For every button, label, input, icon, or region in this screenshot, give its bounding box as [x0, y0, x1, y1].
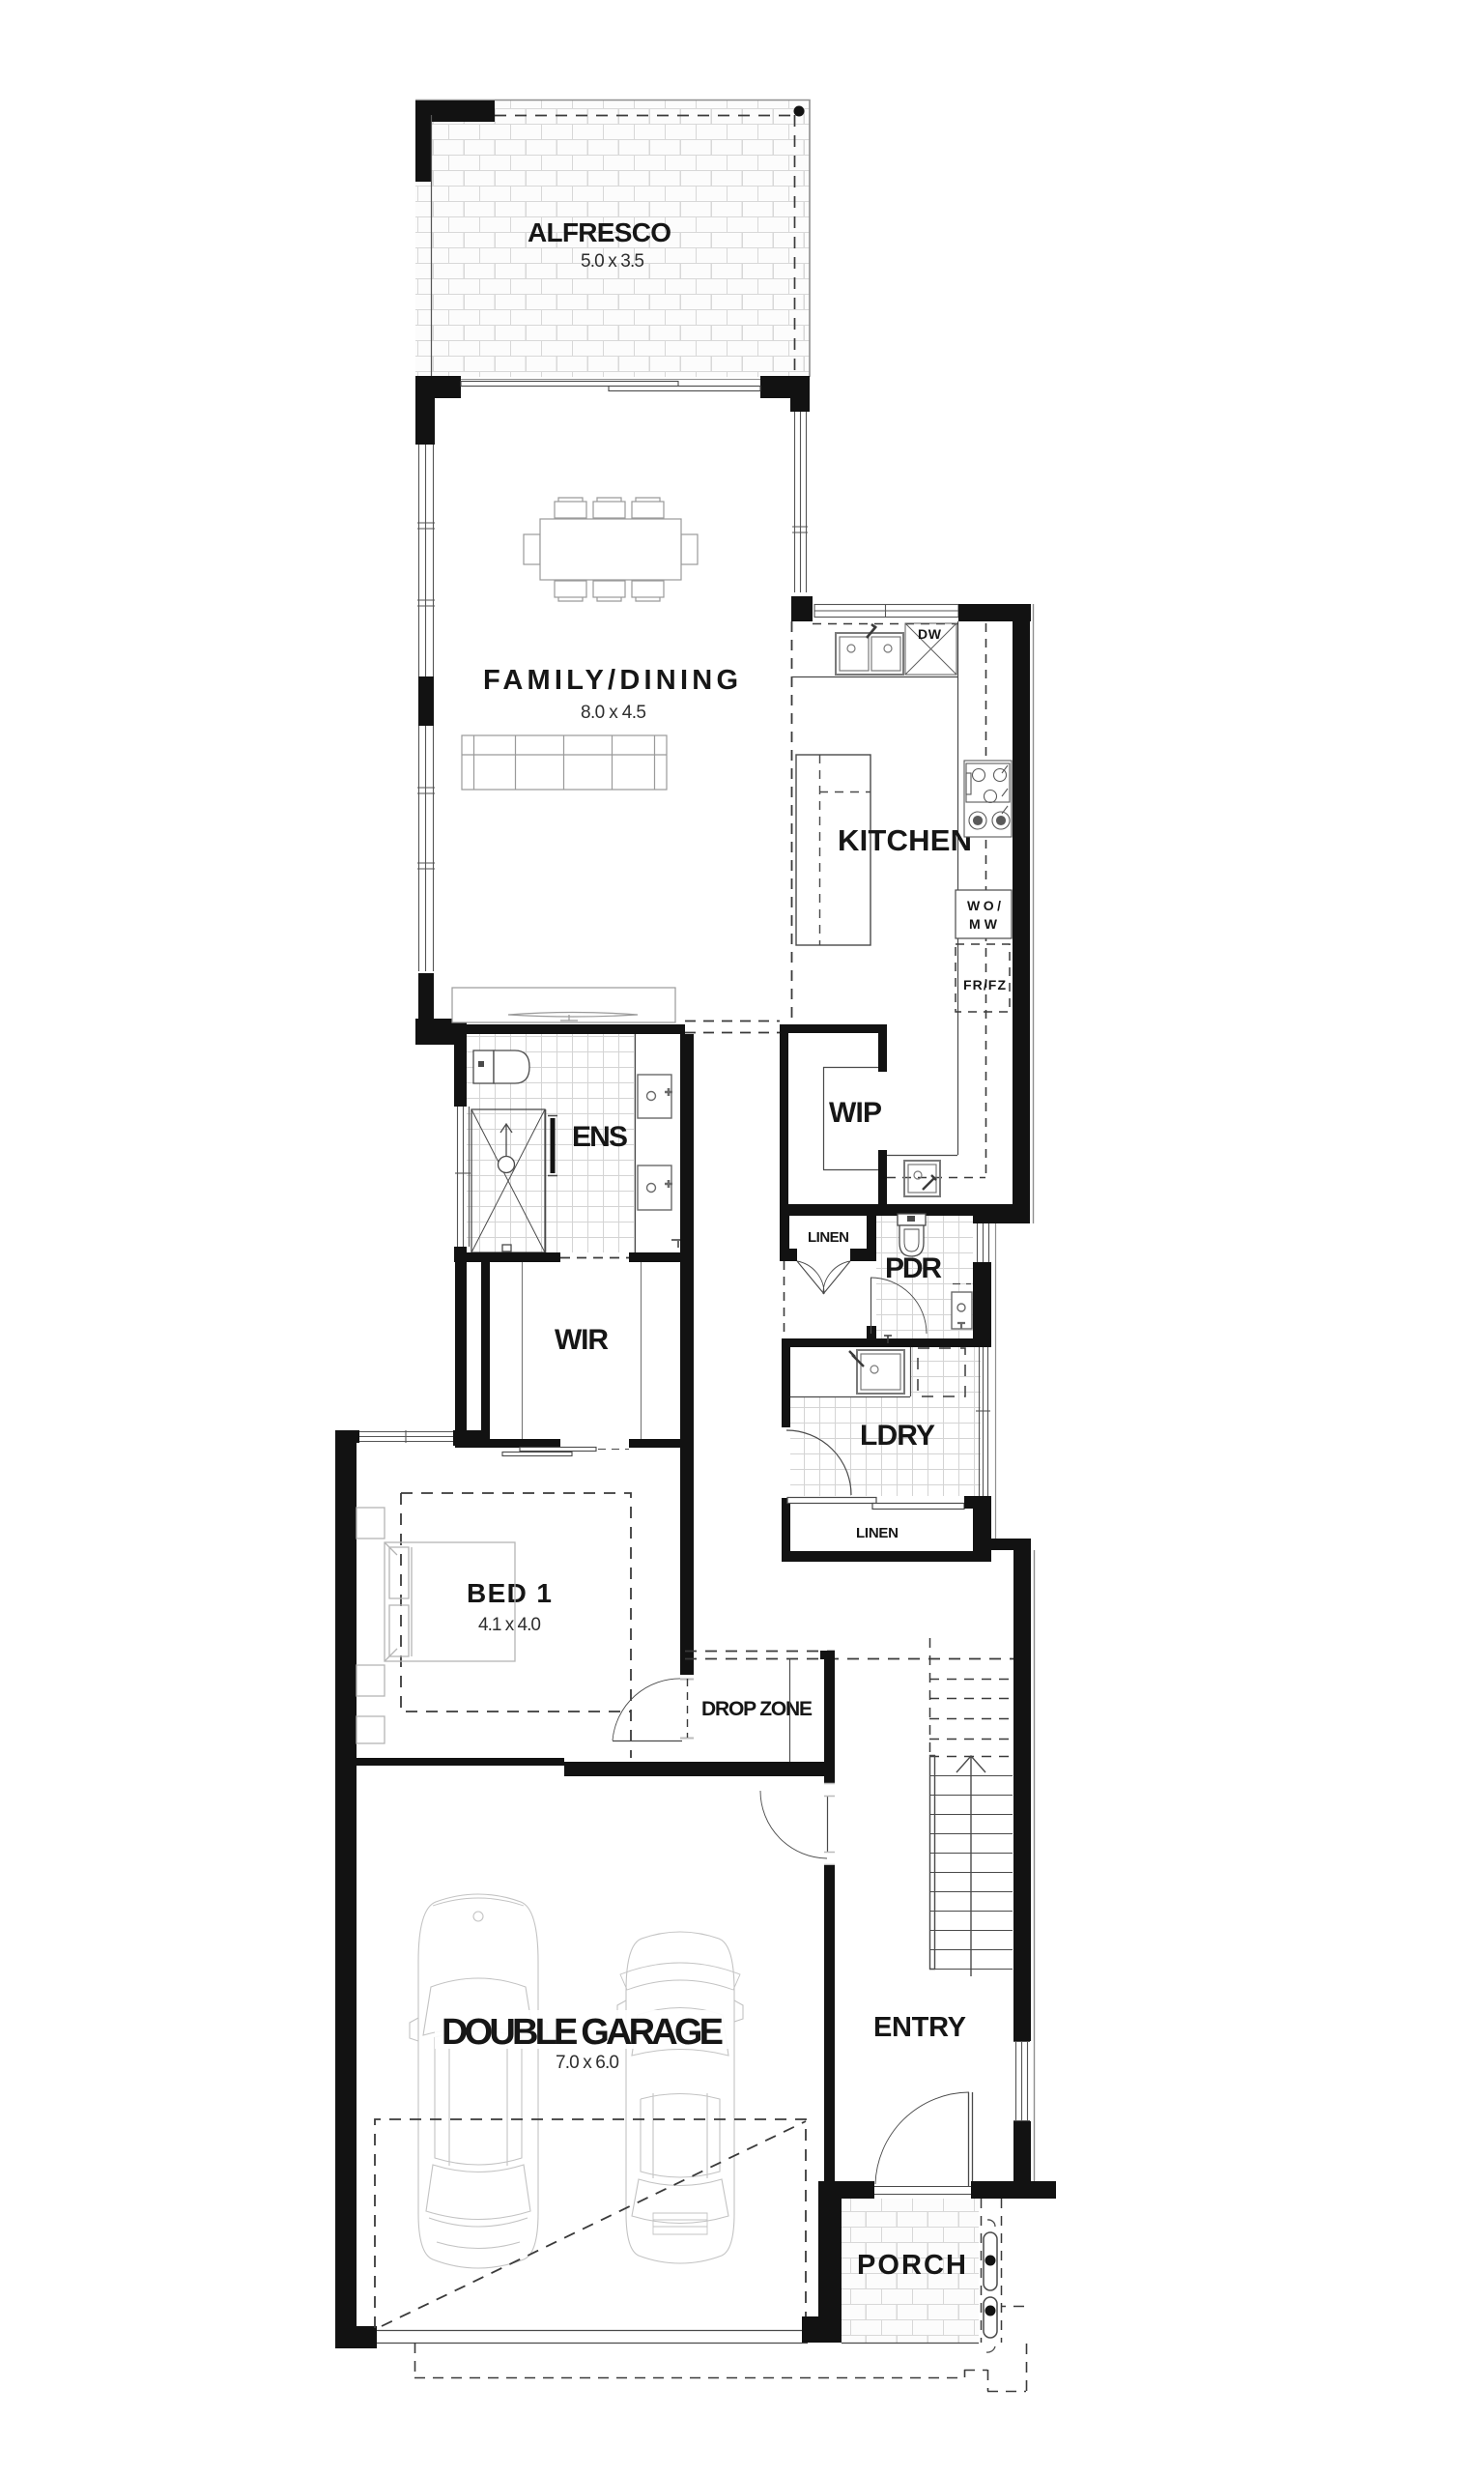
svg-text:8.0 x 4.5: 8.0 x 4.5 — [581, 703, 646, 723]
svg-text:FR/FZ: FR/FZ — [963, 977, 1006, 992]
svg-text:BED 1: BED 1 — [467, 1578, 552, 1608]
svg-text:WIP: WIP — [829, 1097, 882, 1129]
svg-text:PDR: PDR — [885, 1252, 942, 1284]
svg-text:LDRY: LDRY — [860, 1420, 935, 1452]
svg-text:DROP ZONE: DROP ZONE — [701, 1698, 813, 1720]
svg-text:DOUBLE GARAGE: DOUBLE GARAGE — [442, 2012, 724, 2053]
svg-text:ALFRESCO: ALFRESCO — [528, 217, 671, 247]
svg-text:ENTRY: ENTRY — [873, 2012, 966, 2043]
svg-text:DW: DW — [918, 626, 942, 642]
svg-text:KITCHEN: KITCHEN — [838, 823, 972, 857]
svg-text:7.0 x 6.0: 7.0 x 6.0 — [556, 2053, 619, 2073]
svg-text:LINEN: LINEN — [856, 1525, 899, 1541]
svg-text:FAMILY/DINING: FAMILY/DINING — [483, 665, 738, 696]
svg-text:ENS: ENS — [572, 1121, 628, 1153]
svg-text:WIR: WIR — [555, 1324, 609, 1356]
svg-text:5.0 x 3.5: 5.0 x 3.5 — [581, 251, 644, 272]
svg-text:4.1 x 4.0: 4.1 x 4.0 — [478, 1615, 541, 1635]
svg-text:LINEN: LINEN — [808, 1229, 849, 1246]
svg-text:MW: MW — [969, 916, 998, 932]
svg-text:PORCH: PORCH — [857, 2250, 966, 2281]
